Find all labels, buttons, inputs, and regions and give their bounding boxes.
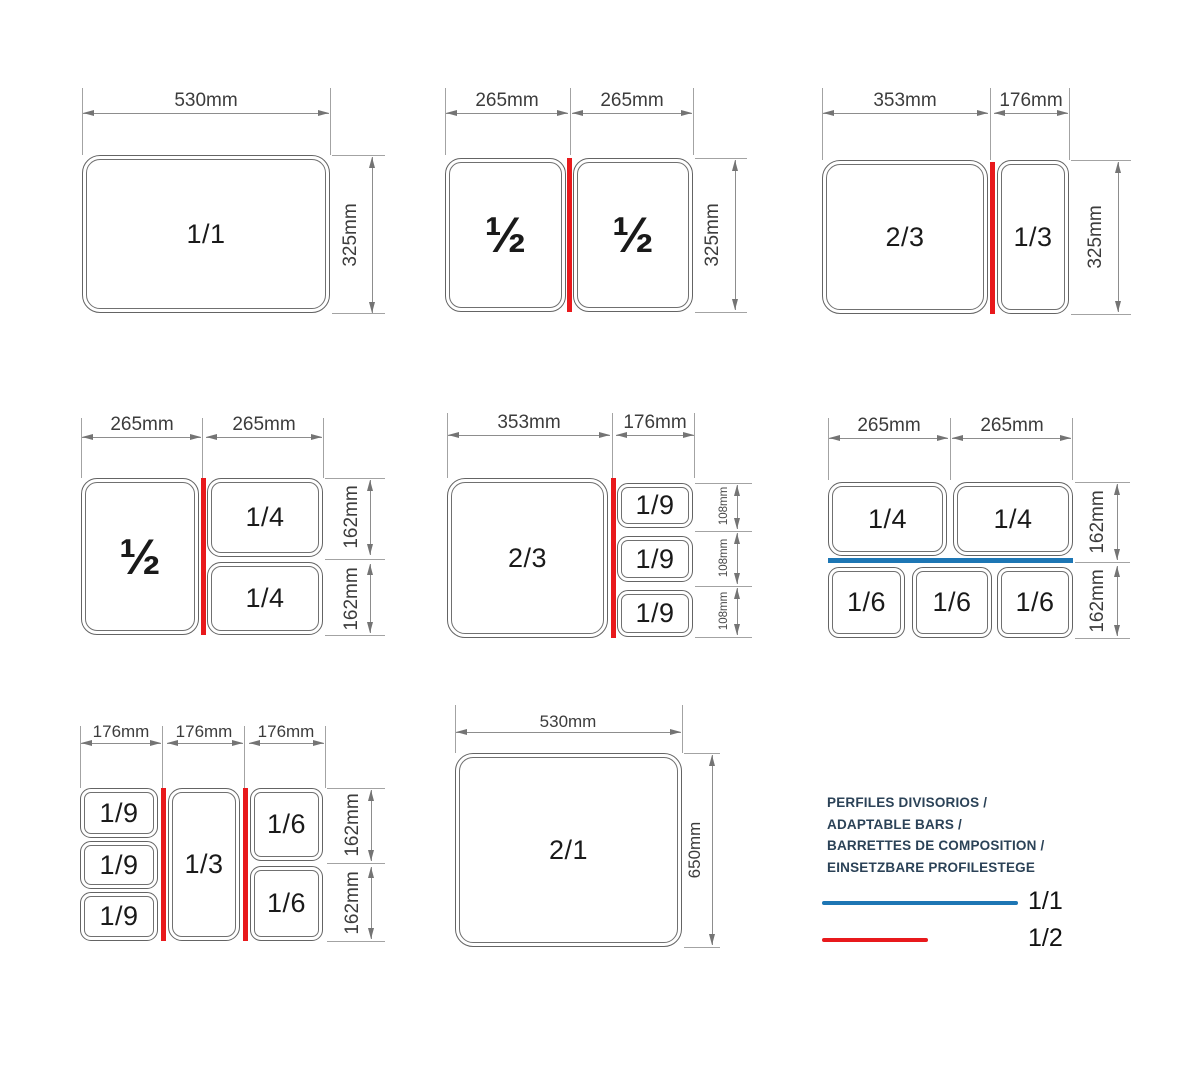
legend-bar-full-sample <box>822 901 1018 905</box>
dimension-line <box>712 755 713 945</box>
extension-line <box>684 753 720 754</box>
legend-bar-half-label: 1/2 <box>1028 924 1063 953</box>
diagram-gn-2-1: 530mm 2/1 650mm <box>0 0 1200 1080</box>
extension-line <box>684 947 720 948</box>
legend-title-line: BARRETTES DE COMPOSITION / <box>827 835 1044 857</box>
legend-title-line: PERFILES DIVISORIOS / <box>827 792 1044 814</box>
legend-title: PERFILES DIVISORIOS / ADAPTABLE BARS / B… <box>827 792 1044 878</box>
legend-bar-half-sample <box>822 938 928 942</box>
legend-bar-full-label: 1/1 <box>1028 887 1063 916</box>
pan-label: 2/1 <box>549 835 588 866</box>
extension-line <box>682 705 683 753</box>
dim-width-label: 530mm <box>540 712 597 732</box>
dimension-line <box>456 732 681 733</box>
legend-title-line: ADAPTABLE BARS / <box>827 814 1044 836</box>
pan-2-1: 2/1 <box>455 753 682 947</box>
legend-title-line: EINSETZBARE PROFILESTEGE <box>827 857 1044 879</box>
dim-height-label: 650mm <box>685 822 705 879</box>
gastronorm-size-sheet: 530mm 1/1 325mm 265mm 265mm ½ ½ 325mm <box>0 0 1200 1080</box>
